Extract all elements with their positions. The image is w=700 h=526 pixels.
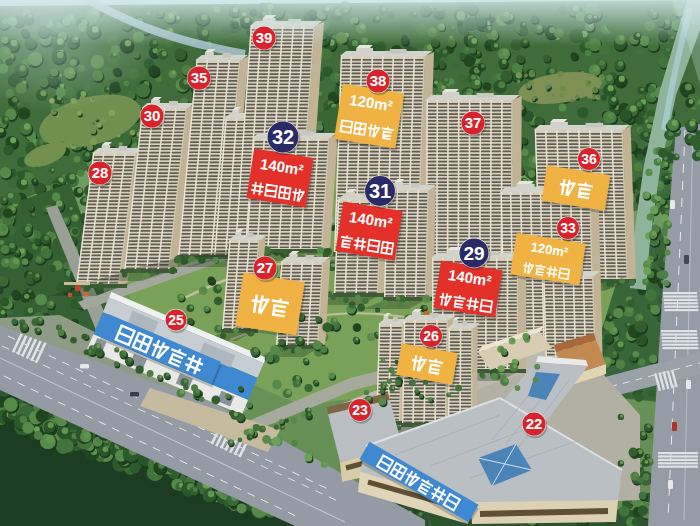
svg-text:25: 25: [168, 312, 184, 328]
svg-text:37: 37: [465, 114, 482, 131]
svg-text:39: 39: [256, 29, 273, 46]
svg-text:29: 29: [463, 243, 484, 264]
svg-text:36: 36: [581, 151, 597, 167]
svg-text:23: 23: [352, 402, 368, 418]
svg-text:33: 33: [560, 220, 576, 236]
svg-text:27: 27: [257, 259, 274, 276]
svg-text:28: 28: [92, 164, 109, 181]
svg-text:30: 30: [144, 107, 161, 124]
svg-text:31: 31: [369, 180, 391, 202]
svg-text:32: 32: [272, 126, 294, 148]
svg-text:38: 38: [370, 72, 387, 89]
svg-text:22: 22: [526, 415, 543, 432]
svg-text:35: 35: [191, 69, 208, 86]
svg-text:26: 26: [423, 328, 439, 344]
